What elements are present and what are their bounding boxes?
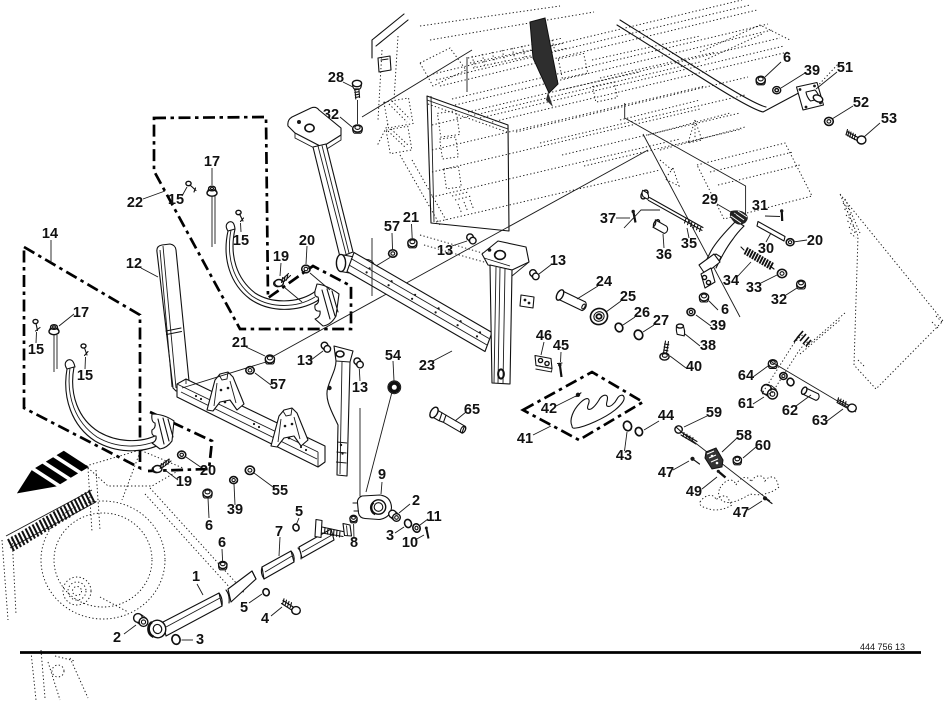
svg-text:19: 19 xyxy=(176,474,192,490)
svg-text:28: 28 xyxy=(328,70,344,86)
svg-text:15: 15 xyxy=(168,192,184,208)
svg-text:1: 1 xyxy=(192,569,200,585)
svg-text:34: 34 xyxy=(723,273,739,289)
svg-text:5: 5 xyxy=(295,504,303,520)
svg-text:39: 39 xyxy=(227,502,243,518)
svg-text:14: 14 xyxy=(42,226,58,242)
svg-text:24: 24 xyxy=(596,274,612,290)
svg-text:6: 6 xyxy=(783,50,791,66)
svg-text:60: 60 xyxy=(755,438,771,454)
svg-text:51: 51 xyxy=(837,60,853,76)
svg-text:13: 13 xyxy=(352,380,368,396)
svg-text:11: 11 xyxy=(426,509,441,525)
svg-text:20: 20 xyxy=(299,233,315,249)
svg-text:17: 17 xyxy=(73,305,89,321)
svg-text:62: 62 xyxy=(782,403,798,419)
svg-text:8: 8 xyxy=(350,535,358,551)
svg-text:12: 12 xyxy=(126,256,142,272)
svg-text:444 756 13: 444 756 13 xyxy=(860,642,905,652)
svg-text:20: 20 xyxy=(200,463,216,479)
svg-text:59: 59 xyxy=(706,405,722,421)
svg-text:4: 4 xyxy=(261,611,269,627)
svg-text:15: 15 xyxy=(28,342,44,358)
svg-text:39: 39 xyxy=(804,63,820,79)
svg-text:49: 49 xyxy=(686,484,702,500)
svg-text:30: 30 xyxy=(758,241,774,257)
svg-text:6: 6 xyxy=(721,302,729,318)
svg-text:15: 15 xyxy=(233,233,249,249)
svg-text:47: 47 xyxy=(733,505,749,521)
svg-text:53: 53 xyxy=(881,111,897,127)
svg-text:47: 47 xyxy=(658,465,674,481)
svg-text:2: 2 xyxy=(113,630,121,646)
svg-text:38: 38 xyxy=(700,338,716,354)
svg-text:61: 61 xyxy=(738,396,754,412)
svg-text:41: 41 xyxy=(517,431,533,447)
svg-text:9: 9 xyxy=(378,467,386,483)
svg-text:65: 65 xyxy=(464,402,480,418)
svg-text:29: 29 xyxy=(702,192,718,208)
svg-text:55: 55 xyxy=(272,483,288,499)
svg-text:13: 13 xyxy=(437,243,453,259)
svg-text:58: 58 xyxy=(736,428,752,444)
svg-text:54: 54 xyxy=(385,348,401,364)
svg-text:43: 43 xyxy=(616,448,632,464)
svg-text:6: 6 xyxy=(218,535,226,551)
svg-text:21: 21 xyxy=(232,335,248,351)
svg-text:36: 36 xyxy=(656,247,672,263)
svg-text:20: 20 xyxy=(807,233,823,249)
svg-text:27: 27 xyxy=(653,313,669,329)
svg-text:52: 52 xyxy=(853,95,869,111)
svg-text:5: 5 xyxy=(240,600,248,616)
svg-text:19: 19 xyxy=(273,249,289,265)
svg-text:39: 39 xyxy=(710,318,726,334)
svg-text:13: 13 xyxy=(297,353,313,369)
svg-text:40: 40 xyxy=(686,359,702,375)
svg-text:7: 7 xyxy=(275,524,283,540)
svg-text:57: 57 xyxy=(384,219,400,235)
svg-text:26: 26 xyxy=(634,305,650,321)
svg-text:46: 46 xyxy=(536,328,552,344)
svg-text:22: 22 xyxy=(127,195,143,211)
svg-text:2: 2 xyxy=(412,493,420,509)
svg-text:25: 25 xyxy=(620,289,636,305)
svg-text:15: 15 xyxy=(77,368,93,384)
svg-text:35: 35 xyxy=(681,236,697,252)
svg-text:32: 32 xyxy=(771,292,787,308)
svg-text:33: 33 xyxy=(746,280,762,296)
svg-text:10: 10 xyxy=(402,535,418,551)
svg-text:6: 6 xyxy=(205,518,213,534)
svg-text:57: 57 xyxy=(270,377,286,393)
svg-text:13: 13 xyxy=(550,253,566,269)
svg-text:23: 23 xyxy=(419,358,435,374)
svg-text:44: 44 xyxy=(658,408,674,424)
svg-text:37: 37 xyxy=(600,211,616,227)
svg-text:17: 17 xyxy=(204,154,220,170)
svg-text:3: 3 xyxy=(386,528,394,544)
svg-text:63: 63 xyxy=(812,413,828,429)
svg-text:21: 21 xyxy=(403,210,419,226)
svg-text:31: 31 xyxy=(752,198,768,214)
svg-text:42: 42 xyxy=(541,401,557,417)
svg-text:3: 3 xyxy=(196,632,204,648)
svg-text:64: 64 xyxy=(738,368,754,384)
svg-text:45: 45 xyxy=(553,338,569,354)
